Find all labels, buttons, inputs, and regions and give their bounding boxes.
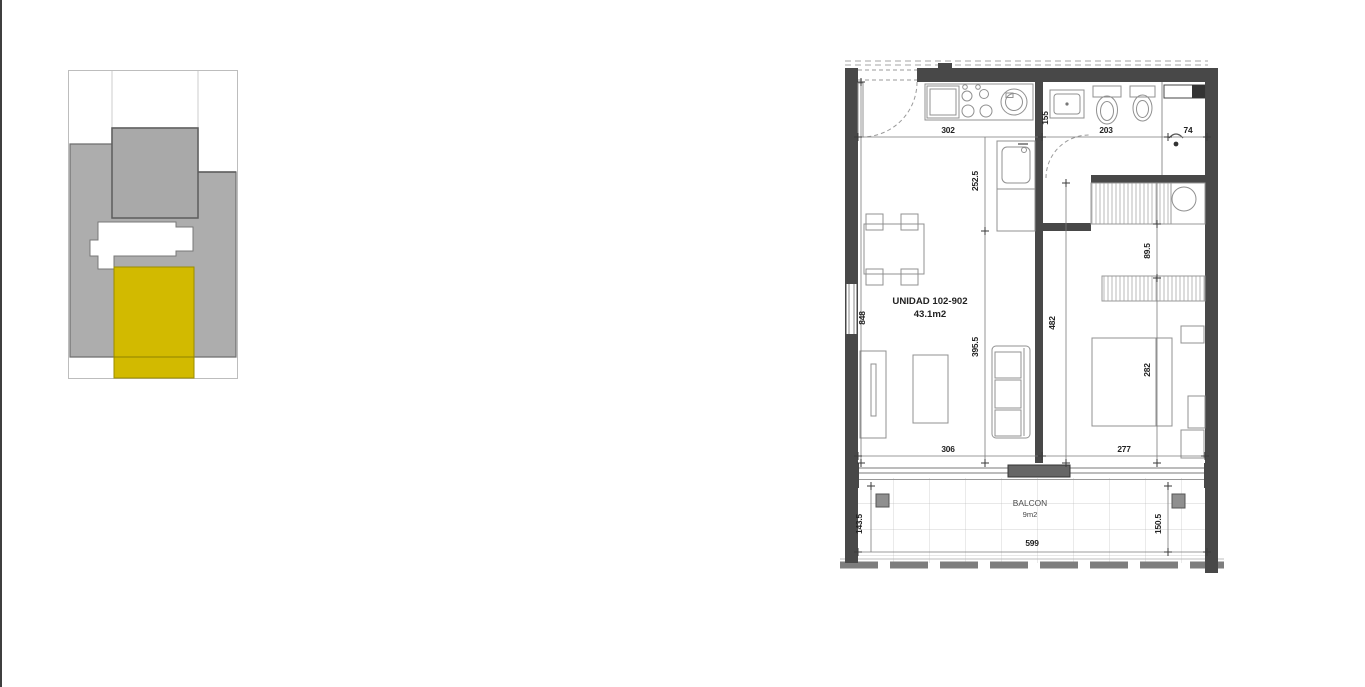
- bottom-right-corner: [1204, 463, 1218, 488]
- closet-hatched-1: [1091, 183, 1171, 224]
- toilet: [1093, 86, 1121, 124]
- dining-table: [864, 214, 924, 285]
- planter-left: [876, 494, 889, 507]
- right-wall: [1205, 68, 1218, 573]
- bathroom-window: [1164, 85, 1205, 98]
- bed: [1092, 338, 1172, 426]
- bedroom-closets: [1091, 183, 1205, 301]
- unit-area-label: 43.1m2: [914, 309, 947, 320]
- bidet: [1130, 86, 1155, 121]
- tv-stand: [860, 351, 886, 438]
- dim-203: 203: [1099, 125, 1113, 135]
- floor-plan: 302 203 74 155 252.5 395.5 848 482 89.5 …: [838, 56, 1230, 578]
- corridor-wall-stub: [1043, 223, 1091, 231]
- dim-599: 599: [1025, 538, 1039, 548]
- dim-848: 848: [857, 311, 867, 325]
- dim-89-5: 89.5: [1142, 243, 1152, 259]
- dim-150-5: 150.5: [1153, 513, 1163, 534]
- entry-door-arc: [862, 82, 917, 137]
- unit-label: UNIDAD 102-902: [892, 296, 967, 307]
- sliding-door-panel: [1008, 465, 1070, 477]
- entry-door: [858, 70, 917, 137]
- dim-74: 74: [1184, 125, 1193, 135]
- nightstand-bottom: [1181, 430, 1204, 458]
- bedroom-furniture: [1092, 326, 1205, 458]
- dim-277: 277: [1117, 444, 1131, 454]
- top-wall: [917, 68, 1218, 82]
- highlighted-unit: [114, 267, 194, 378]
- living-room-furniture: [860, 214, 1030, 438]
- dim-306: 306: [941, 444, 955, 454]
- bathroom-wall: [1091, 175, 1205, 183]
- dim-395-5: 395.5: [970, 336, 980, 357]
- building-block-top: [112, 128, 198, 218]
- window-edge-divider: [0, 0, 2, 687]
- neighbor-dashed-lines: [845, 61, 1208, 65]
- dim-143-5: 143.5: [854, 513, 864, 534]
- key-plan-drawing: [68, 70, 238, 380]
- dim-482: 482: [1047, 316, 1057, 330]
- dim-282: 282: [1142, 363, 1152, 377]
- balcony-label: BALCON: [1013, 498, 1047, 508]
- bathroom: [1046, 82, 1205, 178]
- planter-right: [1172, 494, 1185, 508]
- dim-302: 302: [941, 125, 955, 135]
- nightstand-top: [1181, 326, 1204, 343]
- stove-burners: [962, 85, 992, 117]
- bedside-bench: [1188, 396, 1205, 428]
- sofa: [992, 346, 1030, 438]
- bathroom-vanity: [1050, 90, 1084, 118]
- kitchen: [925, 84, 1035, 231]
- kitchen-sink: [1001, 89, 1027, 115]
- key-plan: [68, 70, 238, 380]
- dim-155: 155: [1040, 111, 1050, 125]
- floor-plan-drawing: 302 203 74 155 252.5 395.5 848 482 89.5 …: [838, 56, 1230, 578]
- dim-252-5: 252.5: [970, 170, 980, 191]
- closet-hatched-2: [1102, 276, 1205, 301]
- closet-corner-box: [1171, 183, 1205, 224]
- left-wall-window: [847, 284, 857, 334]
- page: { "key_plan": { "highlight_color": "#d2b…: [0, 0, 1365, 687]
- tall-cabinet-laundry: [997, 141, 1035, 231]
- balcony-area-label: 9m2: [1023, 510, 1038, 519]
- top-wall-tab: [938, 63, 952, 69]
- bathroom-door-arc: [1046, 135, 1089, 178]
- coffee-table: [913, 355, 948, 423]
- bottom-left-corner: [845, 463, 859, 488]
